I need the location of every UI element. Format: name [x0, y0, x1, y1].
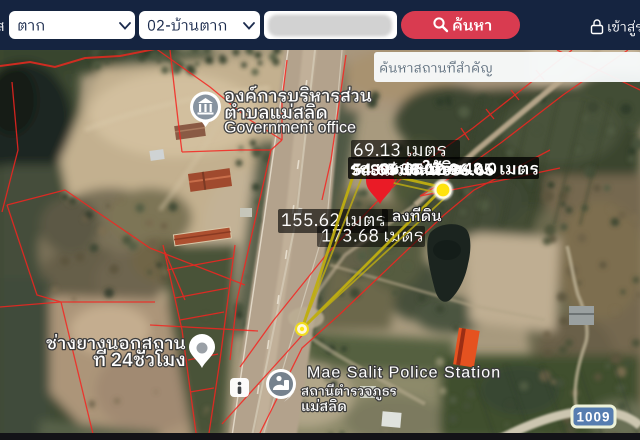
svg-text:Mae Salit Police Station: Mae Salit Police Station: [307, 365, 501, 382]
svg-text:1009: 1009: [576, 410, 610, 425]
svg-text:Government office: Government office: [224, 120, 356, 137]
